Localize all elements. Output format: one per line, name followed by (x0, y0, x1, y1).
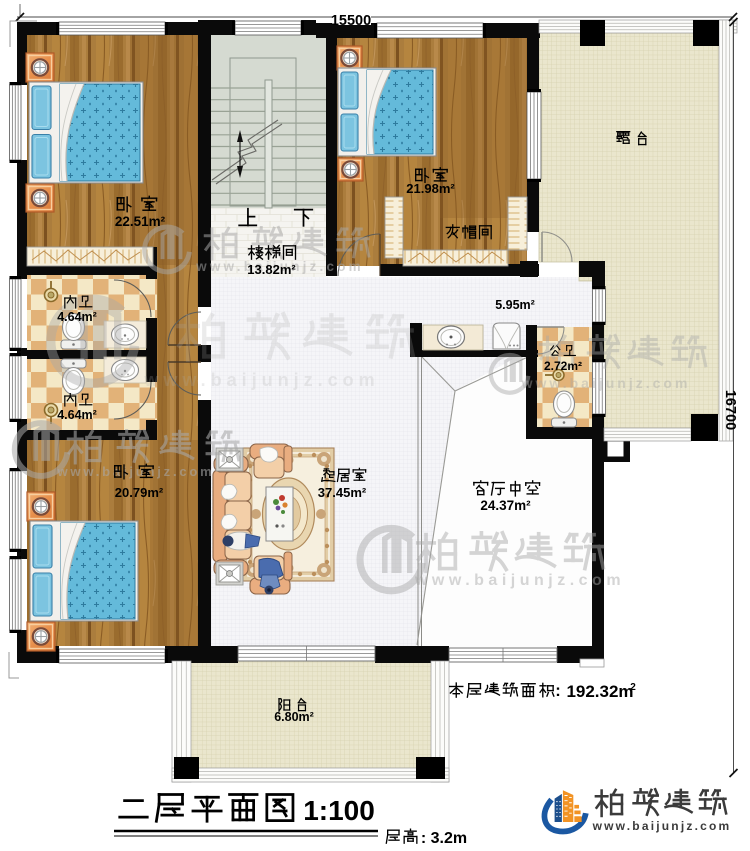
svg-text:37.45m²: 37.45m² (318, 485, 367, 500)
svg-text:www.baijunjz.com: www.baijunjz.com (143, 370, 379, 390)
svg-text:5.95m²: 5.95m² (495, 298, 535, 312)
svg-text:4.64m²: 4.64m² (57, 408, 97, 422)
svg-text::: : (555, 682, 561, 700)
svg-text:www.baijunjz.com: www.baijunjz.com (57, 464, 215, 479)
svg-text:6.80m²: 6.80m² (274, 710, 314, 724)
svg-text:1:100: 1:100 (303, 795, 375, 826)
svg-text:: 3.2m: : 3.2m (421, 830, 467, 847)
svg-text:2: 2 (630, 682, 636, 693)
svg-text:2.72m²: 2.72m² (544, 359, 582, 373)
svg-text:www.baijunjz.com: www.baijunjz.com (521, 375, 691, 391)
svg-text:www.baijunjz.com: www.baijunjz.com (592, 819, 732, 833)
svg-text:22.51m²: 22.51m² (115, 214, 166, 229)
svg-text:www.baijunjz.com: www.baijunjz.com (414, 572, 625, 589)
svg-text:21.98m²: 21.98m² (406, 181, 455, 196)
svg-text:20.79m²: 20.79m² (115, 485, 164, 500)
svg-text:4.64m²: 4.64m² (57, 310, 97, 324)
svg-text:24.37m²: 24.37m² (480, 498, 531, 513)
svg-text:192.32m: 192.32m (566, 682, 633, 701)
svg-text:16700: 16700 (722, 390, 738, 430)
svg-text:13.82m²: 13.82m² (247, 262, 296, 277)
svg-text:15500: 15500 (331, 13, 371, 29)
